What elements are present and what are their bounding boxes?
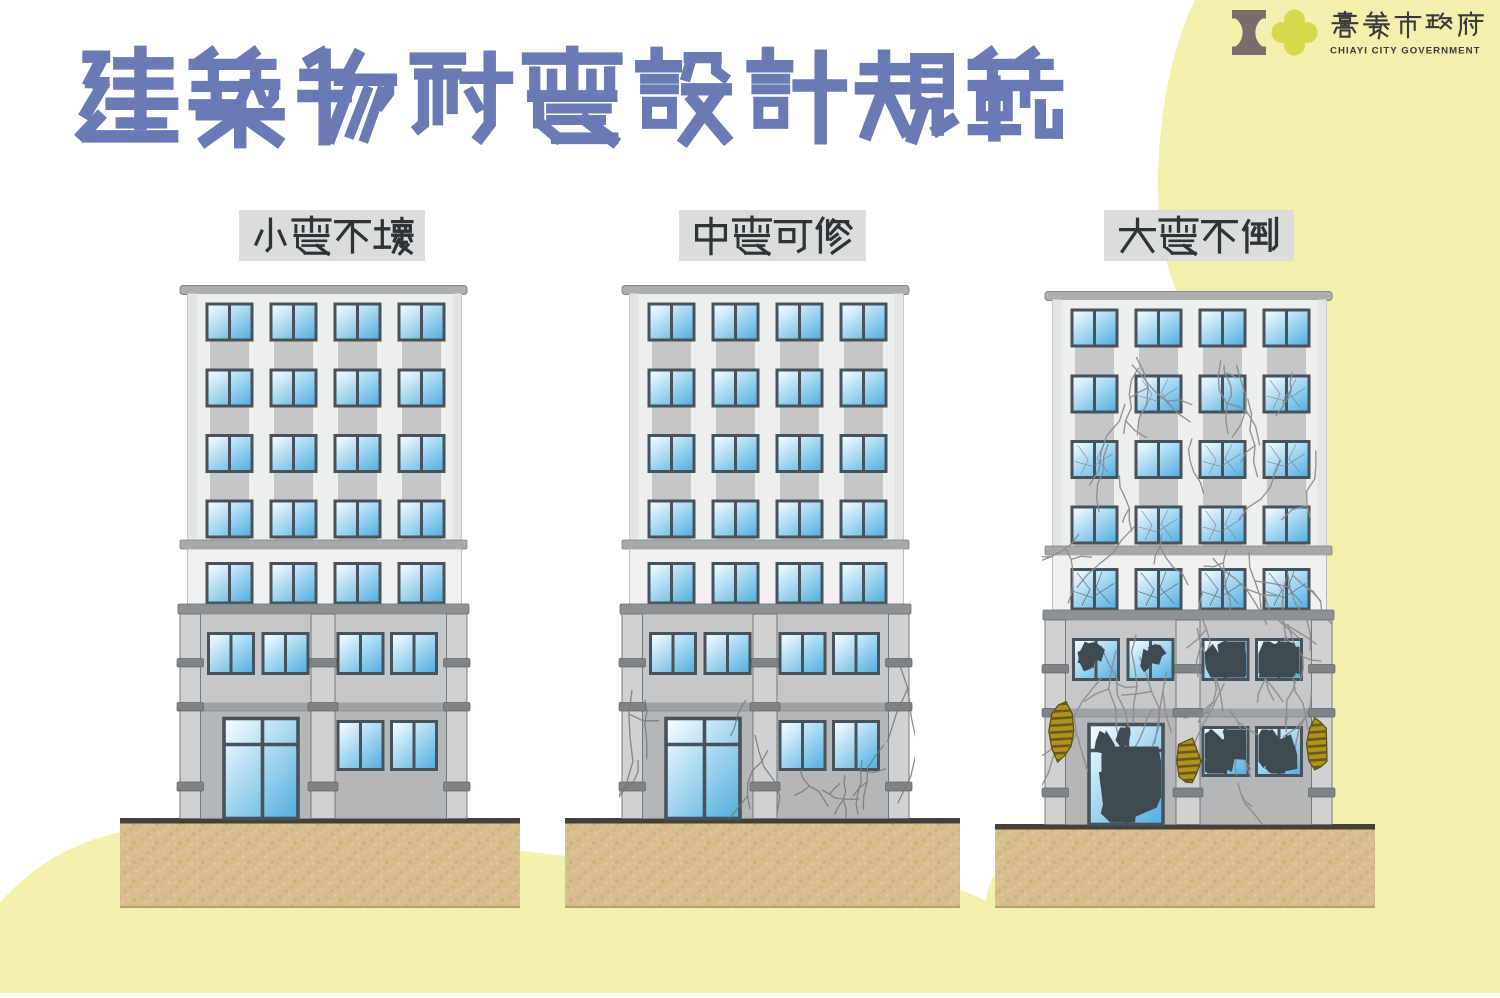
svg-text:CHIAYI CITY GOVERNMENT: CHIAYI CITY GOVERNMENT [1330,46,1481,57]
